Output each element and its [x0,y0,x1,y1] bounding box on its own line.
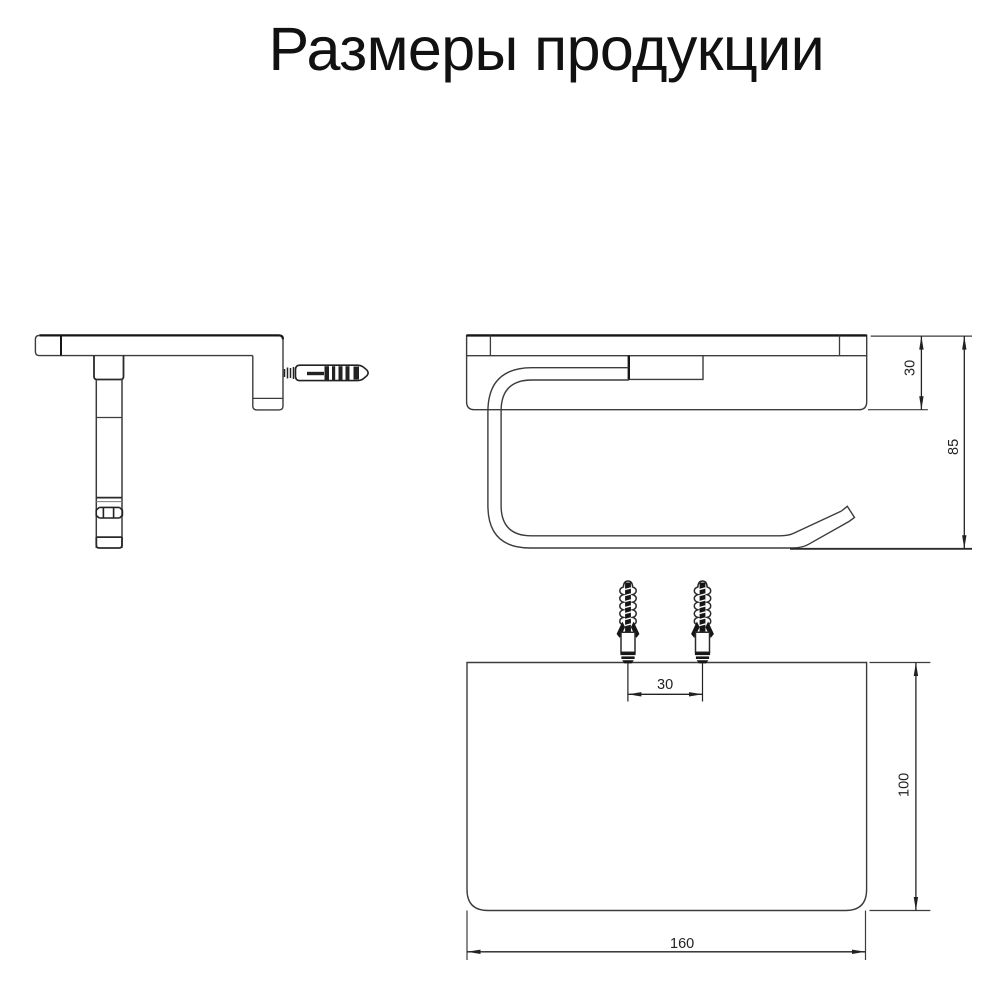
svg-text:30: 30 [903,360,919,376]
svg-text:Размеры продукции: Размеры продукции [269,15,825,83]
svg-text:100: 100 [897,773,913,797]
svg-text:85: 85 [946,439,962,455]
svg-text:30: 30 [657,677,673,693]
svg-text:160: 160 [670,936,694,952]
